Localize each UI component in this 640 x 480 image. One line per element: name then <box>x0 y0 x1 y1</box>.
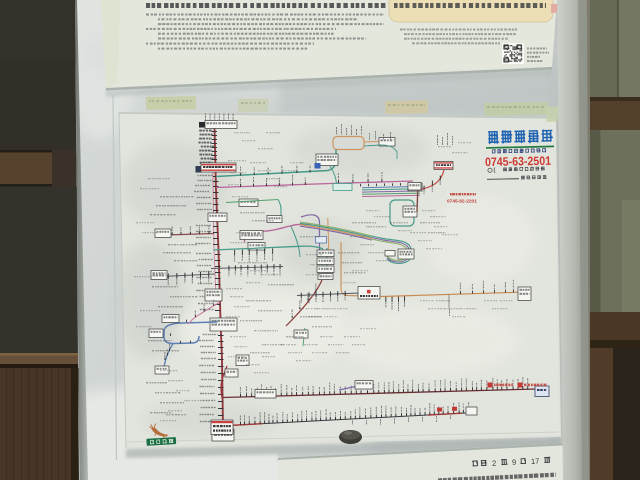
svg-text:2: 2 <box>492 459 497 468</box>
svg-text:0745-82-2201: 0745-82-2201 <box>447 199 477 205</box>
svg-text:17: 17 <box>531 457 540 466</box>
svg-text:9: 9 <box>512 458 517 467</box>
